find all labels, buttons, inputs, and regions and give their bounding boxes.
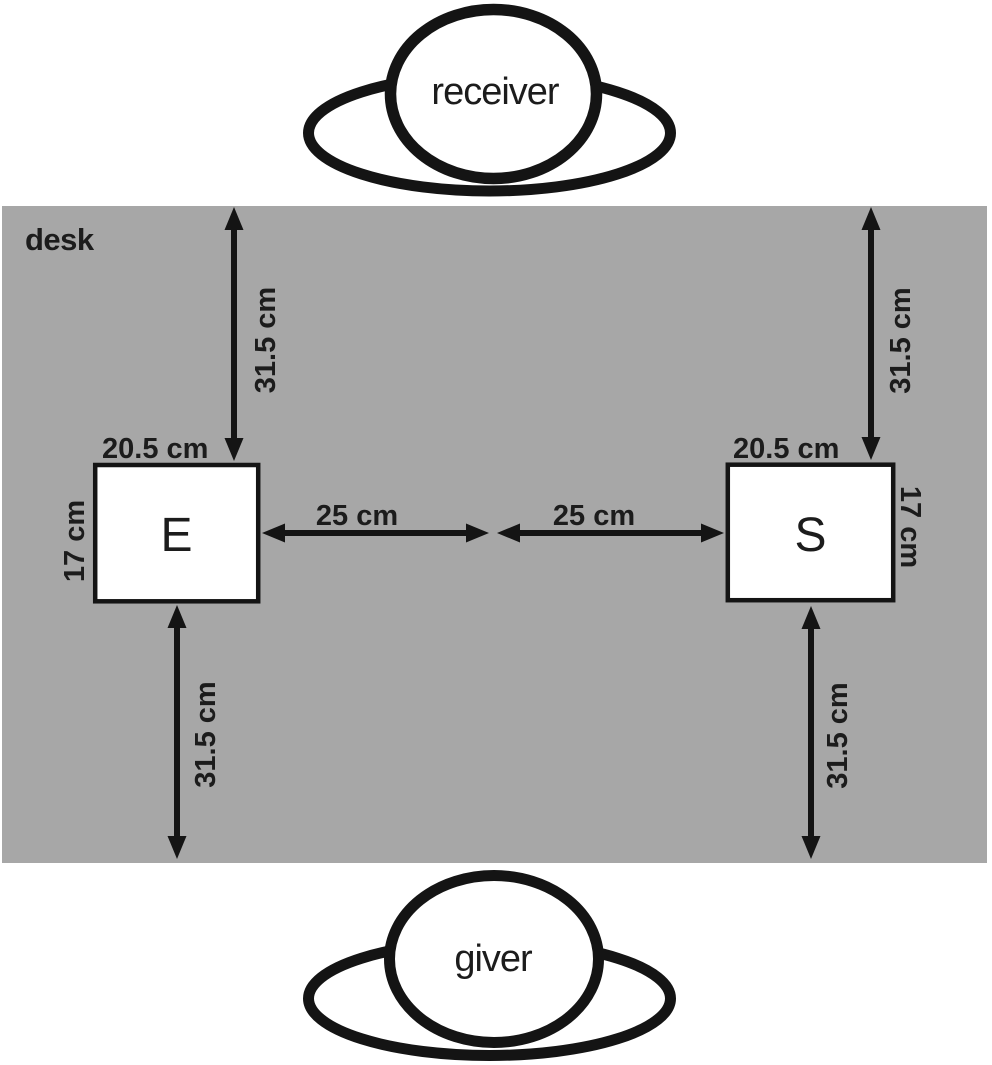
svg-text:E: E xyxy=(160,509,192,562)
svg-text:20.5 cm: 20.5 cm xyxy=(733,433,839,465)
svg-text:31.5 cm: 31.5 cm xyxy=(822,682,854,788)
svg-text:31.5 cm: 31.5 cm xyxy=(250,287,282,393)
svg-text:giver: giver xyxy=(454,938,533,980)
svg-text:desk: desk xyxy=(25,222,95,257)
svg-text:17 cm: 17 cm xyxy=(59,500,91,582)
svg-text:25 cm: 25 cm xyxy=(553,500,635,532)
svg-text:31.5 cm: 31.5 cm xyxy=(190,681,222,787)
svg-text:25 cm: 25 cm xyxy=(316,500,398,532)
svg-text:S: S xyxy=(794,509,826,562)
svg-text:20.5 cm: 20.5 cm xyxy=(102,433,208,465)
svg-text:31.5 cm: 31.5 cm xyxy=(885,287,917,393)
svg-text:receiver: receiver xyxy=(431,71,559,113)
svg-text:17 cm: 17 cm xyxy=(894,486,926,568)
